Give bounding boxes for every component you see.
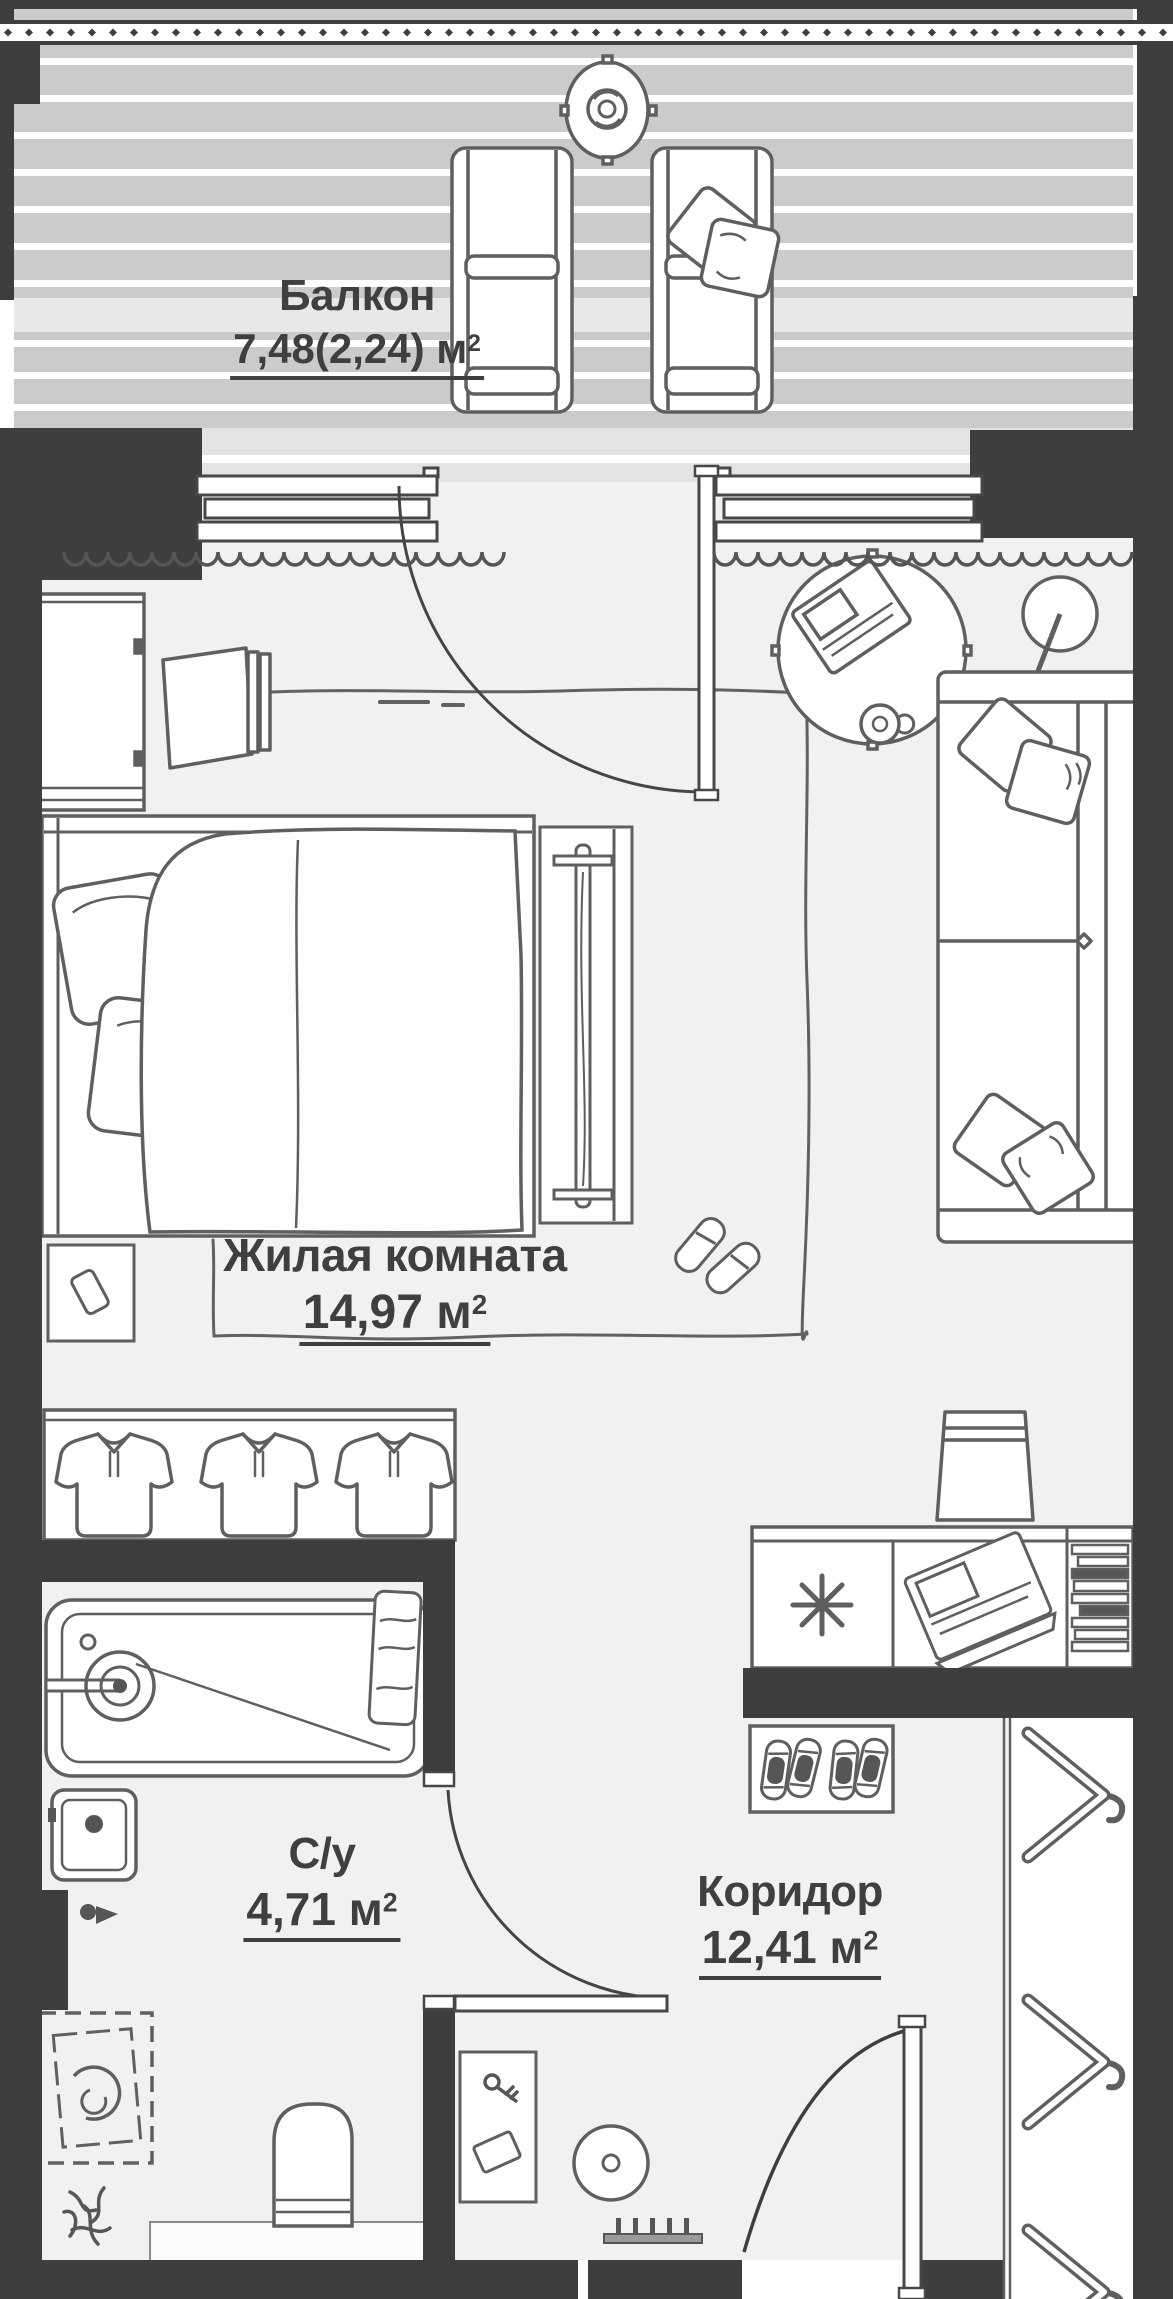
entry-rug [574, 2126, 648, 2200]
wall-bottom-2 [588, 2260, 742, 2299]
room-name: Коридор [697, 1868, 883, 1916]
room-area-sup: 2 [472, 1289, 487, 1320]
room-area-value: 12,41 м [702, 1921, 864, 1973]
shoe-mat [750, 1726, 893, 1812]
floor-step [150, 2222, 452, 2262]
room-area-value: 7,48(2,24) м [233, 325, 467, 372]
bar-stool [937, 1412, 1033, 1520]
room-area: 7,48(2,24) м2 [230, 326, 484, 379]
floor-plan: Балкон 7,48(2,24) м2 Жилая комната 14,97… [0, 0, 1173, 2299]
bed [42, 816, 534, 1236]
room-area-value: 14,97 м [303, 1286, 472, 1339]
wall-balcony-right [1137, 8, 1173, 300]
room-area: 12,41 м2 [697, 1922, 883, 1980]
room-area-value: 4,71 м [246, 1883, 382, 1935]
cooktop-asterisk [793, 1576, 851, 1634]
room-area: 14,97 м2 [223, 1287, 566, 1347]
window-right [716, 468, 982, 541]
console-table [460, 2052, 536, 2202]
room-label-corridor: Коридор 12,41 м2 [697, 1868, 883, 1980]
balcony-railing [0, 24, 1173, 41]
tv [163, 648, 270, 768]
wall-bathroom-top [42, 1540, 455, 1582]
wall-bathroom-right-upper [423, 1582, 455, 1782]
blanket [141, 829, 522, 1233]
hall-wardrobe-floor [1008, 1718, 1133, 2299]
wall-top [0, 0, 1173, 9]
towel [369, 1591, 422, 1725]
sneaker [829, 1740, 859, 1800]
desk [752, 1527, 1133, 1676]
wall-right [1133, 296, 1173, 2299]
sofa [938, 672, 1142, 1242]
room-area-sup: 2 [864, 1926, 879, 1956]
wall-pilaster [42, 1890, 68, 2010]
boot-dryer [604, 2218, 702, 2243]
wall-left [0, 580, 42, 2299]
room-area-sup: 2 [383, 1888, 398, 1918]
lounge-chair-right [652, 148, 780, 412]
room-name: С/у [243, 1830, 400, 1878]
room-label-balcony: Балкон 7,48(2,24) м2 [230, 272, 484, 380]
toilet [274, 2104, 352, 2226]
bathtub [46, 1591, 430, 1776]
room-label-bathroom: С/у 4,71 м2 [243, 1830, 400, 1942]
books [1072, 1545, 1128, 1651]
wall-bottom-1 [42, 2260, 578, 2299]
clothes-rack [44, 1410, 455, 1540]
room-label-living: Жилая комната 14,97 м2 [223, 1230, 566, 1346]
facade-band-line [42, 455, 1133, 463]
room-area: 4,71 м2 [243, 1884, 400, 1942]
wall-bottom-3 [920, 2260, 1005, 2299]
wall-corridor-band [743, 1668, 1133, 1718]
sink [48, 1790, 136, 1880]
room-name: Жилая комната [223, 1230, 566, 1281]
radiator-bench [540, 827, 632, 1223]
tall-wardrobe [40, 594, 144, 810]
room-area-sup: 2 [467, 330, 481, 357]
wall-block-right [970, 430, 1137, 538]
wall-bathroom-right-lower [423, 2006, 455, 2262]
nightstand [48, 1245, 134, 1341]
floor-plan-svg [0, 0, 1173, 2299]
room-name: Балкон [230, 272, 484, 320]
